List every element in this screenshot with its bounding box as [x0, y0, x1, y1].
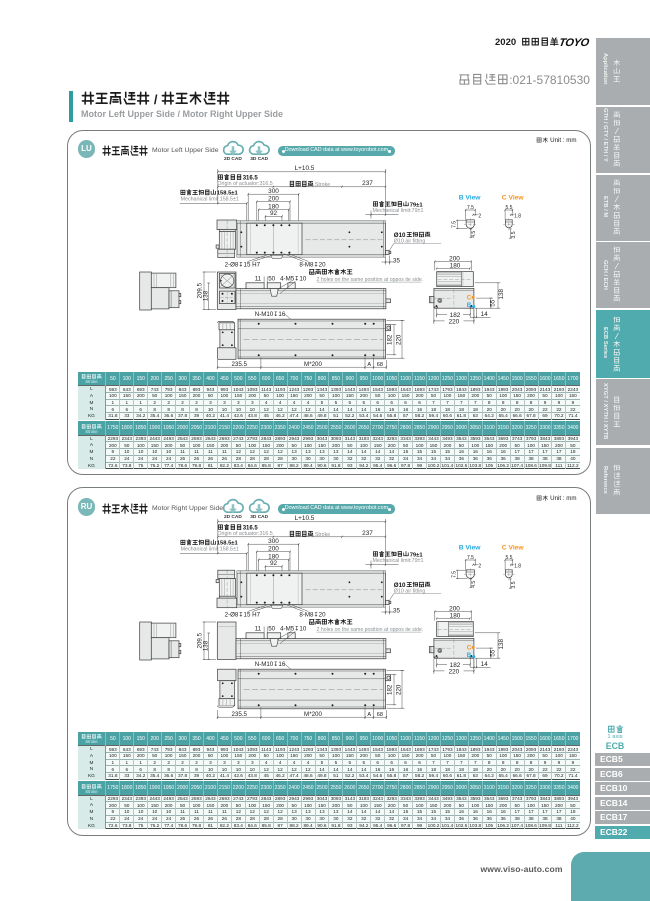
- svg-text:2-Ø8↧15 H7: 2-Ø8↧15 H7: [224, 261, 260, 268]
- svg-text:3.5: 3.5: [511, 231, 517, 238]
- svg-text:138: 138: [497, 638, 504, 649]
- svg-text:2: 2: [478, 213, 481, 219]
- svg-text:182: 182: [386, 334, 393, 345]
- svg-text:68: 68: [376, 712, 382, 718]
- svg-text:200: 200: [268, 195, 279, 202]
- svg-text:235.5: 235.5: [231, 361, 247, 368]
- svg-text:C: C: [466, 295, 471, 302]
- svg-text:Stroke: Stroke: [314, 531, 329, 537]
- svg-text:3.5: 3.5: [511, 581, 517, 588]
- svg-text:Stroke: Stroke: [314, 182, 329, 188]
- svg-text:B: B: [466, 652, 471, 659]
- svg-text:7.5: 7.5: [451, 221, 457, 228]
- svg-text:50: 50: [268, 275, 275, 282]
- svg-text:68: 68: [376, 362, 382, 368]
- svg-text:4.5: 4.5: [471, 580, 477, 587]
- svg-text:235.5: 235.5: [231, 711, 247, 718]
- svg-text:4-M5↧10: 4-M5↧10: [280, 625, 307, 632]
- svg-text:50: 50: [268, 625, 275, 632]
- svg-text:220: 220: [448, 318, 459, 325]
- svg-text:4-M5↧10: 4-M5↧10: [280, 275, 307, 282]
- svg-text:11: 11: [254, 625, 261, 632]
- svg-text:2: 2: [478, 563, 481, 569]
- svg-text:C View: C View: [501, 544, 524, 551]
- svg-text:4.5: 4.5: [471, 231, 477, 238]
- svg-text:237: 237: [362, 180, 373, 187]
- svg-text:8-M8↧20: 8-M8↧20: [299, 261, 326, 268]
- svg-text:2-Ø8↧15 H7: 2-Ø8↧15 H7: [224, 611, 260, 618]
- svg-text:8-M8↧20: 8-M8↧20: [299, 611, 326, 618]
- svg-text:Mechanical limit:158.5±1: Mechanical limit:158.5±1: [180, 196, 238, 202]
- svg-text:138: 138: [202, 640, 209, 651]
- svg-text:55: 55: [489, 649, 496, 657]
- svg-text:220: 220: [395, 684, 402, 695]
- svg-text:220: 220: [448, 668, 459, 675]
- svg-text:N-M10↧16: N-M10↧16: [254, 661, 285, 668]
- svg-text:Origin of actuator:316.5: Origin of actuator:316.5: [217, 181, 272, 187]
- svg-text:Mechanical limit:79±1: Mechanical limit:79±1: [372, 557, 423, 563]
- svg-text:35: 35: [393, 258, 400, 265]
- svg-text:300: 300: [268, 188, 279, 195]
- svg-text:A: A: [367, 362, 371, 368]
- svg-text:1.8: 1.8: [514, 213, 521, 219]
- svg-text:1.8: 1.8: [514, 563, 521, 569]
- svg-text:92: 92: [269, 210, 277, 217]
- svg-text:14: 14: [480, 661, 487, 668]
- svg-text:Mechanical limit:158.5±1: Mechanical limit:158.5±1: [180, 546, 238, 552]
- svg-text:7.5: 7.5: [451, 570, 457, 577]
- svg-text:B: B: [466, 302, 471, 309]
- svg-text:Mechanical limit:79±1: Mechanical limit:79±1: [372, 208, 423, 214]
- svg-text:C View: C View: [501, 195, 524, 202]
- svg-text:300: 300: [268, 538, 279, 545]
- svg-text:35: 35: [393, 607, 400, 614]
- svg-text:L+10.5: L+10.5: [294, 515, 314, 522]
- svg-text:M*200: M*200: [304, 711, 322, 718]
- svg-text:92: 92: [269, 560, 277, 567]
- svg-text:B View: B View: [458, 544, 481, 551]
- svg-text:Origin of actuator:316.5: Origin of actuator:316.5: [217, 530, 272, 536]
- svg-text:237: 237: [362, 530, 373, 537]
- svg-text:B View: B View: [458, 195, 481, 202]
- svg-text:C: C: [466, 644, 471, 651]
- svg-text:55: 55: [489, 299, 496, 307]
- svg-text:N-M10↧16: N-M10↧16: [254, 311, 285, 318]
- svg-text:11: 11: [254, 275, 261, 282]
- svg-text:182: 182: [386, 684, 393, 695]
- svg-text:220: 220: [395, 334, 402, 345]
- svg-text:138: 138: [497, 288, 504, 299]
- svg-text:L+10.5: L+10.5: [294, 165, 314, 172]
- svg-text:M*200: M*200: [304, 361, 322, 368]
- svg-text:14: 14: [480, 311, 487, 318]
- svg-text:A: A: [367, 712, 371, 718]
- svg-text:200: 200: [268, 545, 279, 552]
- svg-text:138: 138: [202, 290, 209, 301]
